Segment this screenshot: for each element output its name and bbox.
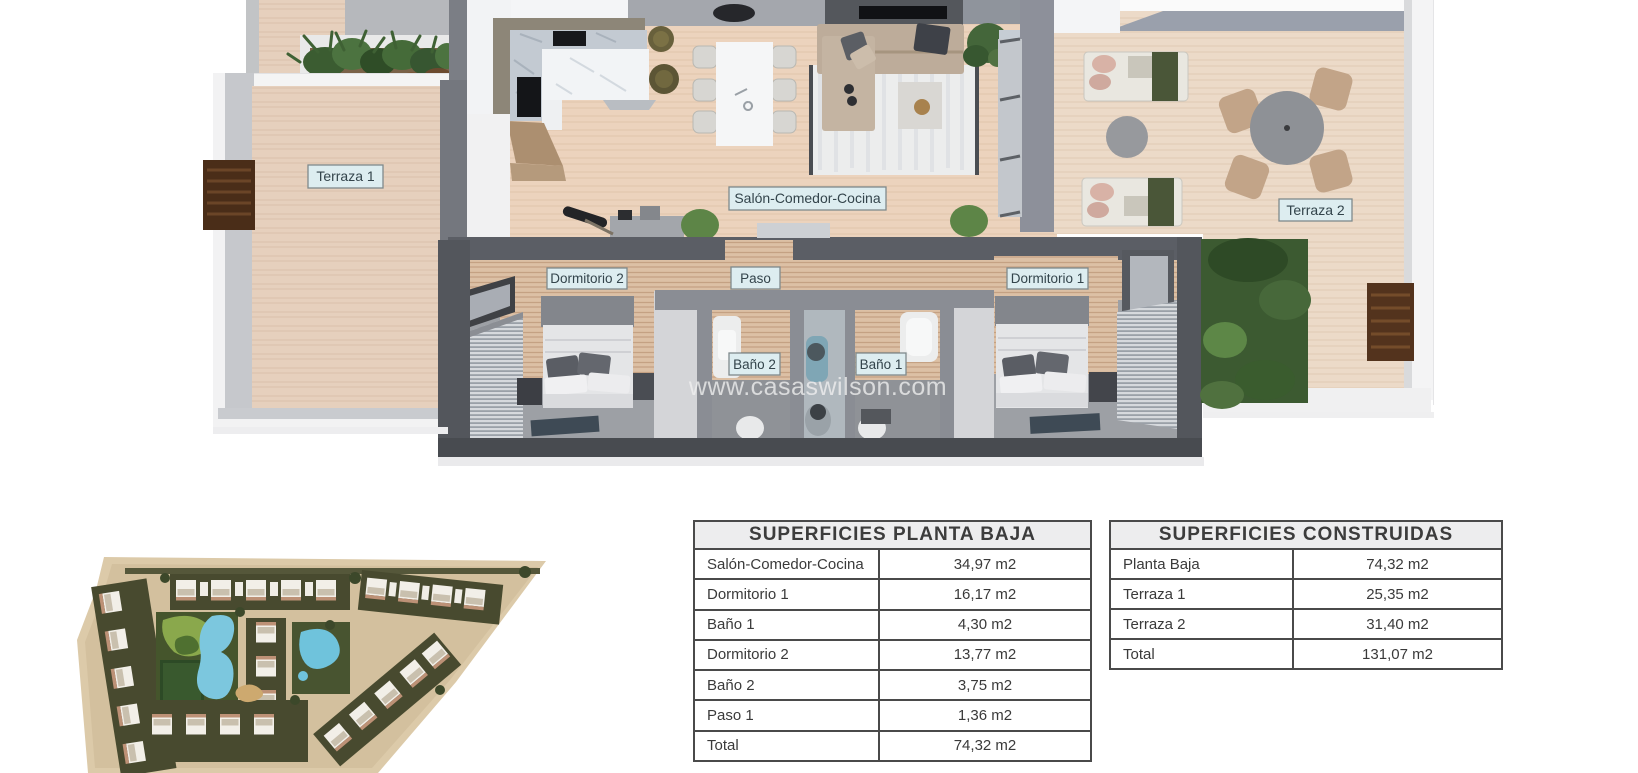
svg-text:Terraza 1: Terraza 1 xyxy=(316,168,375,184)
svg-text:www.casaswilson.com: www.casaswilson.com xyxy=(688,373,947,401)
svg-text:Salón-Comedor-Cocina: Salón-Comedor-Cocina xyxy=(734,190,881,206)
svg-text:Baño 2: Baño 2 xyxy=(733,357,776,372)
svg-text:Paso: Paso xyxy=(740,271,771,286)
svg-text:Dormitorio 2: Dormitorio 2 xyxy=(550,271,624,286)
svg-text:Terraza 2: Terraza 2 xyxy=(1286,202,1345,218)
svg-text:Baño 1: Baño 1 xyxy=(860,357,903,372)
svg-text:Dormitorio 1: Dormitorio 1 xyxy=(1011,271,1085,286)
